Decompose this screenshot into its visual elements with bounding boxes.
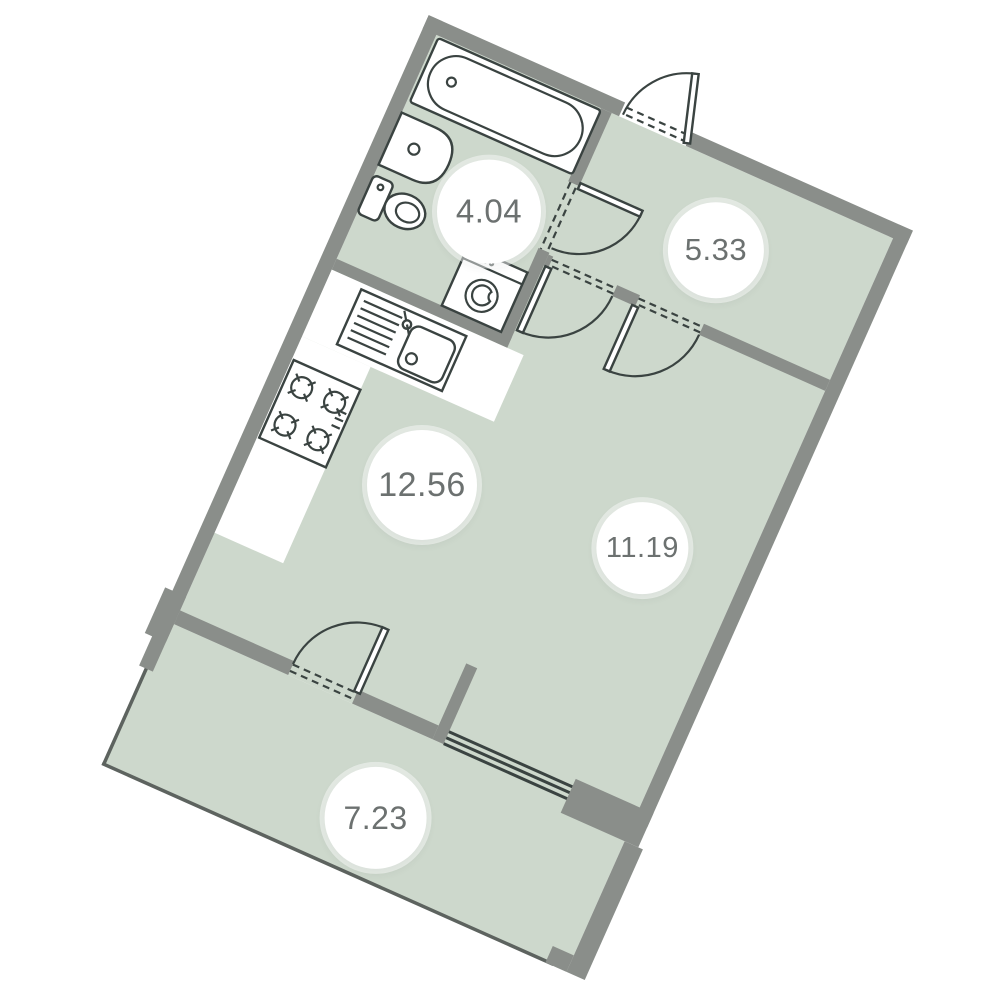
room-label-hallway: 5.33 <box>668 202 764 298</box>
balcony-area-value: 7.23 <box>343 799 407 836</box>
room-label-balcony: 7.23 <box>325 767 427 869</box>
kitchen-living-area-value: 12.56 <box>378 465 466 504</box>
floor-plan: 4.04 5.33 12.56 11.19 7.23 <box>91 15 913 989</box>
room-label-kitchen-living: 12.56 <box>367 430 477 540</box>
entrance-door-leaf <box>684 73 699 143</box>
room-area-value: 11.19 <box>606 532 679 565</box>
floor-plan-drawing <box>91 0 949 989</box>
floor-plan-page: 4.04 5.33 12.56 11.19 7.23 <box>0 0 1000 1000</box>
bathroom-area-value: 4.04 <box>456 193 522 231</box>
room-label-bathroom: 4.04 <box>437 160 541 264</box>
hallway-area-value: 5.33 <box>685 232 747 268</box>
room-label-room: 11.19 <box>596 502 688 594</box>
